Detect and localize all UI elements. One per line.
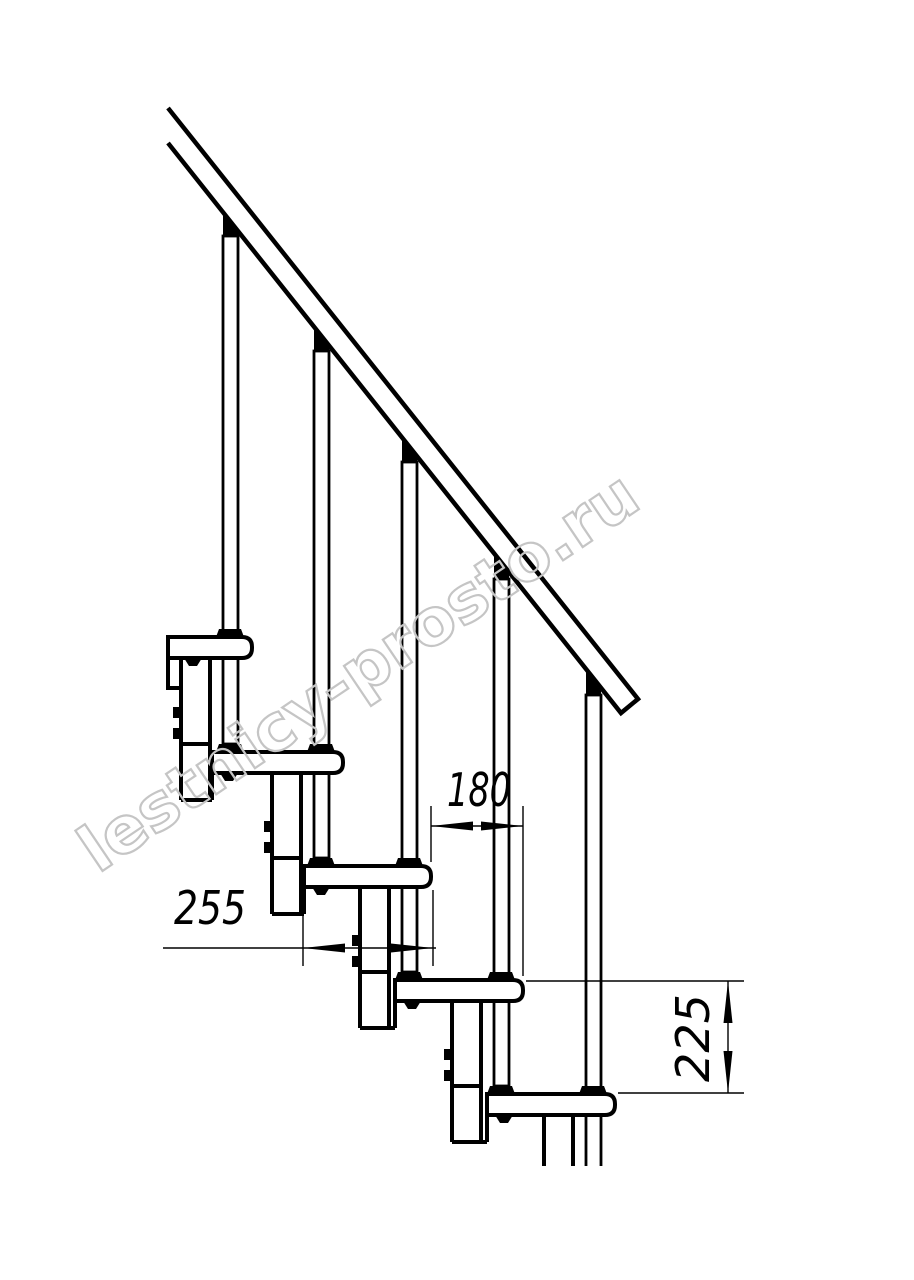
baluster-1 <box>216 213 244 637</box>
module-bolt <box>264 821 272 832</box>
support-column-4 <box>395 1001 487 1142</box>
arrow-left-icon <box>303 944 345 953</box>
tread-4 <box>395 980 523 1001</box>
arrow-down-icon <box>724 1051 733 1093</box>
dim-tread-depth-label: 255 <box>174 881 246 935</box>
module-bolt <box>264 842 272 853</box>
module-bolt <box>444 1070 452 1081</box>
baluster-5-lower <box>586 1115 601 1166</box>
tread-bolt <box>312 887 330 895</box>
module-bolt <box>444 1049 452 1060</box>
module-bolt <box>352 956 360 967</box>
watermark-text: lestnicy-prosto.ru <box>66 458 653 887</box>
baluster-collar <box>395 858 423 866</box>
support-column-3 <box>304 887 395 1028</box>
baluster-3-lower <box>395 887 423 980</box>
tread-5 <box>487 1094 615 1115</box>
dimension-step-rise: 225 <box>526 981 744 1093</box>
stair-drawing: 180 255 225 lestnicy-prosto.ru <box>0 0 914 1280</box>
module-bolt <box>173 728 181 739</box>
baluster-collar <box>216 629 244 637</box>
dim-step-run-label: 180 <box>447 763 511 817</box>
tread-bolt <box>403 1001 421 1009</box>
arrow-left-icon <box>431 822 473 831</box>
tread-3 <box>304 866 431 887</box>
arrow-up-icon <box>724 981 733 1023</box>
tread-bolt <box>184 658 202 666</box>
dim-step-rise-label: 225 <box>666 994 720 1082</box>
module-bolt <box>173 707 181 718</box>
baluster-collar <box>487 972 515 980</box>
baluster-2-lower <box>307 773 335 866</box>
baluster-collar <box>579 1086 607 1094</box>
tread-1 <box>168 637 252 658</box>
tread-bolt <box>495 1115 513 1123</box>
baluster-4-lower <box>487 1001 515 1094</box>
stair-drawing-canvas: 180 255 225 lestnicy-prosto.ru <box>0 0 914 1280</box>
module-bolt <box>352 935 360 946</box>
baluster-5 <box>579 672 607 1094</box>
